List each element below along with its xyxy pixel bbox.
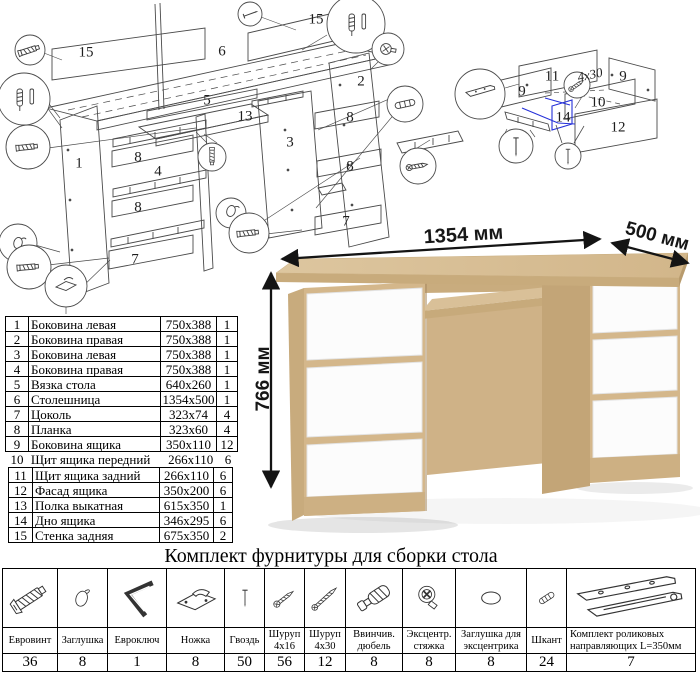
part-name: Боковина правая [29,332,161,347]
part-size: 350x110 [161,437,217,452]
drawer-front [593,397,677,458]
drawer-front [593,336,677,394]
drawer-slides-icon [567,569,695,628]
part-name: Цоколь [29,407,161,422]
left-pedestal [288,282,425,521]
screw-in-dowel-icon [346,569,402,628]
hardware-item-qty: 8 [456,654,526,671]
diagram-part-label: 4x30 [576,65,604,86]
part-qty: 12 [217,437,238,452]
parts-table-row: 1Боковина левая750x3881 [6,317,238,332]
part-size: 615x350 [160,498,214,513]
part-number: 3 [6,347,29,362]
part-qty: 4 [217,422,238,437]
screw-4x16-icon [265,569,304,628]
hardware-item-label: Шуруп 4х16 [265,628,304,654]
parts-table-row: 3Боковина левая750x3881 [6,347,238,362]
part-size: 640x260 [161,377,217,392]
hardware-kit-table: Евровинт36 Заглушка8 Евроключ1 Ножка8 Гв… [2,568,696,672]
hex-key-icon [108,569,166,628]
hardware-item: Евроключ1 [107,569,166,671]
part-number: 14 [9,513,33,528]
part-name: Боковина ящика [29,437,161,452]
hardware-item: Шкант24 [526,569,566,671]
part-size: 323x74 [161,407,217,422]
part-number: 2 [6,332,29,347]
hardware-item: Эксцентр. стяжка8 [402,569,455,671]
hardware-item-qty: 7 [567,654,695,671]
part-number: 7 [6,407,29,422]
parts-table-row: 6Столешница1354x5001 [6,392,238,407]
hardware-item-label: Эксцентр. стяжка [403,628,455,654]
hardware-item-label: Ножка [167,628,224,654]
hardware-item: Евровинт36 [3,569,57,671]
hardware-item-qty: 50 [225,654,264,671]
parts-table-row: 15Стенка задняя675x3502 [9,528,233,543]
part-number: 12 [9,483,33,498]
part-name: Щит ящика задний [33,468,160,483]
part-number: 9 [6,437,29,452]
part-name: Фасад ящика [33,483,160,498]
cam-cap-icon [456,569,526,628]
parts-table-row: 14Дно ящика346x2956 [9,513,233,528]
part-name: Щит ящика передний [29,453,163,466]
parts-table-top: 1Боковина левая750x38812Боковина правая7… [5,316,238,452]
desktop [276,253,688,287]
hardware-item-label: Шуруп 4х30 [305,628,345,654]
diagram-part-label: 14 [556,110,571,127]
parts-table-row: 9Боковина ящика350x11012 [6,437,238,452]
part-qty: 1 [214,498,233,513]
parts-list: 1Боковина левая750x38812Боковина правая7… [5,316,238,543]
drawer-front [307,439,422,497]
drawer-front [307,288,422,360]
parts-table-row: 4Боковина правая750x3881 [6,362,238,377]
part-number: 15 [9,528,33,543]
hardware-item: Заглушка8 [57,569,107,671]
part-size: 750x388 [161,332,217,347]
hardware-item-label: Гвоздь [225,628,264,654]
assembly-instruction-sheet: 156155133184872887 11991014124x30 [0,0,700,677]
part-size: 675x350 [160,528,214,543]
hardware-item-label: Заглушка для эксцентрика [456,628,526,654]
hardware-item: Заглушка для эксцентрика8 [455,569,526,671]
part-qty: 1 [217,362,238,377]
hardware-item: Шуруп 4х1656 [264,569,304,671]
nail-icon [225,569,264,628]
diagram-part-label: 10 [591,95,606,112]
part-size: 1354x500 [161,392,217,407]
part-size: 266x110 [163,453,218,466]
hardware-item-qty: 12 [305,654,345,671]
hardware-item: Шуруп 4х3012 [304,569,345,671]
screw-4x30-icon [305,569,345,628]
parts-table-row-10: 10 Щит ящика передний 266x110 6 [5,452,238,467]
parts-table-row: 11Щит ящика задний266x1106 [9,468,233,483]
part-name: Стенка задняя [33,528,160,543]
diagram-part-label: 12 [611,120,626,137]
wood-dowel-icon [527,569,566,628]
cap-icon [58,569,107,628]
part-size: 750x388 [161,317,217,332]
parts-table-row: 5Вязка стола640x2601 [6,377,238,392]
part-qty: 6 [214,483,233,498]
parts-table-row: 12Фасад ящика350x2006 [9,483,233,498]
part-size: 346x295 [160,513,214,528]
hardware-item-label: Евроключ [108,628,166,654]
parts-table-row: 13Полка выкатная615x3501 [9,498,233,513]
part-number: 13 [9,498,33,513]
part-number: 1 [6,317,29,332]
part-size: 266x110 [160,468,214,483]
right-pedestal [542,277,680,494]
height-dimension-label: 766 мм [253,339,275,419]
confirmat-screw-icon [3,569,57,628]
hardware-item: Ввинчив. дюбель8 [345,569,402,671]
part-number: 6 [6,392,29,407]
part-qty: 1 [217,317,238,332]
part-name: Дно ящика [33,513,160,528]
parts-table-row: 8Планка323x604 [6,422,238,437]
part-name: Планка [29,422,161,437]
hardware-kit-title: Комплект фурнитуры для сборки стола [0,545,662,568]
part-qty: 6 [218,453,238,466]
part-size: 350x200 [160,483,214,498]
part-size: 323x60 [161,422,217,437]
hardware-item-qty: 8 [167,654,224,671]
parts-table-row: 2Боковина правая750x3881 [6,332,238,347]
part-qty: 1 [217,347,238,362]
diagram-part-label: 9 [619,69,627,86]
cam-lock-icon [403,569,455,628]
part-qty: 6 [214,513,233,528]
hardware-item-qty: 8 [403,654,455,671]
hardware-item: Комплект роликовых направляющих L=350мм7 [566,569,695,671]
desk-render [255,215,700,555]
part-qty: 6 [214,468,233,483]
drawer-front [593,281,677,333]
part-number: 8 [6,422,29,437]
hardware-item-qty: 8 [346,654,402,671]
hardware-item-qty: 56 [265,654,304,671]
foot-icon [167,569,224,628]
diagram-part-label: 11 [545,69,559,86]
hardware-item-qty: 36 [3,654,57,671]
part-size: 750x388 [161,362,217,377]
hardware-item: Гвоздь50 [224,569,264,671]
part-name: Боковина левая [29,317,161,332]
hardware-item-qty: 1 [108,654,166,671]
part-name: Боковина левая [29,347,161,362]
parts-table-bottom: 11Щит ящика задний266x110612Фасад ящика3… [8,467,233,543]
hardware-item-label: Заглушка [58,628,107,654]
part-qty: 1 [217,332,238,347]
part-qty: 4 [217,407,238,422]
part-size: 750x388 [161,347,217,362]
part-qty: 1 [217,392,238,407]
part-number: 5 [6,377,29,392]
part-name: Полка выкатная [33,498,160,513]
part-qty: 1 [217,377,238,392]
hardware-item-label: Шкант [527,628,566,654]
part-name: Столешница [29,392,161,407]
part-qty: 2 [214,528,233,543]
parts-table-row: 7Цоколь323x744 [6,407,238,422]
drawer-front [307,362,422,437]
hardware-item-qty: 24 [527,654,566,671]
part-name: Вязка стола [29,377,161,392]
hardware-item-qty: 8 [58,654,107,671]
hardware-item: Ножка8 [166,569,224,671]
part-number: 10 [5,453,29,466]
hardware-item-label: Евровинт [3,628,57,654]
diagram-part-label: 9 [518,84,526,101]
hardware-item-label: Ввинчив. дюбель [346,628,402,654]
part-name: Боковина правая [29,362,161,377]
part-number: 11 [9,468,33,483]
part-number: 4 [6,362,29,377]
hardware-item-label: Комплект роликовых направляющих L=350мм [567,628,695,654]
